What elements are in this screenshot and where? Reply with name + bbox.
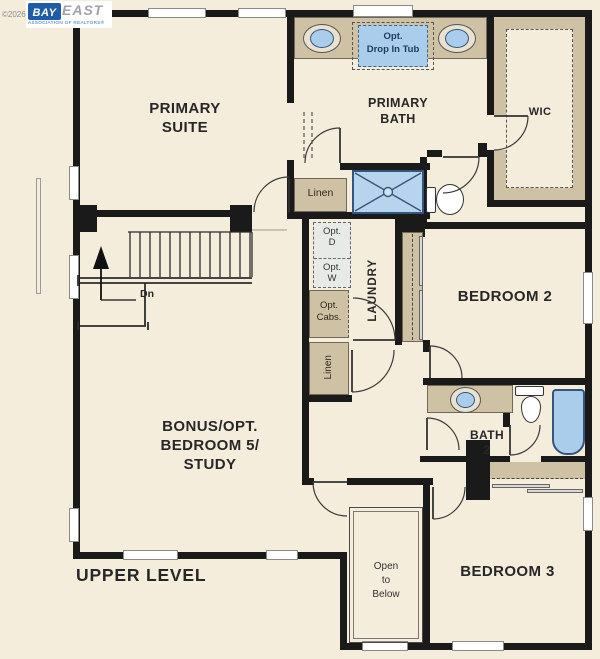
optional-dryer: Opt. D [314, 223, 350, 259]
wall-segment [302, 212, 309, 402]
opt-w-line1: Opt. [314, 262, 350, 273]
sliding-door [419, 236, 423, 286]
toilet-tank [515, 386, 544, 396]
linen-upper-label: Linen [294, 187, 347, 200]
wall-segment [423, 483, 430, 643]
opt-d-line2: D [314, 237, 350, 248]
sink-basin [456, 392, 475, 408]
wall-segment [487, 10, 494, 115]
primary-suite-line2: SUITE [95, 119, 275, 138]
sliding-door [419, 290, 423, 340]
wall-segment [395, 219, 402, 345]
opt-d-line1: Opt. [314, 226, 350, 237]
shower [352, 170, 424, 214]
room-label-bedroom2: BEDROOM 2 [430, 288, 580, 307]
opt-tub-label-line1: Opt. [359, 31, 427, 44]
optional-washer-dryer: Opt. D Opt. W [313, 222, 351, 288]
open-below-line3: Below [352, 588, 420, 602]
wic-shelf [494, 17, 506, 115]
logo: ©2026 BAY EAST ASSOCIATION OF REALTORS® [0, 0, 180, 32]
wall-segment [423, 340, 430, 352]
bath2-line2: 2 [457, 443, 517, 458]
logo-east-text: EAST [62, 2, 103, 18]
stairs-down-label: Dn [140, 288, 170, 301]
wall-segment [287, 10, 294, 103]
linen-lower-label: Linen [323, 327, 336, 407]
wall-segment [487, 200, 592, 207]
window [452, 641, 504, 651]
primary-bath-line1: PRIMARY [330, 96, 466, 112]
window [123, 550, 178, 560]
room-label-bedroom3: BEDROOM 3 [430, 563, 585, 582]
floor-plan: Opt. Drop In Tub Linen Opt. D Opt. W Opt… [0, 0, 600, 659]
window [69, 508, 79, 542]
stair-treads [128, 232, 252, 277]
stair-rails [78, 275, 252, 330]
copyright-year: ©2026 [2, 10, 26, 19]
room-label-wic: WIC [505, 106, 575, 120]
room-label-primary-suite: PRIMARY SUITE [95, 100, 275, 138]
wall-segment [585, 10, 592, 650]
sink-basin [310, 29, 334, 48]
bath2-line1: BATH [457, 428, 517, 443]
level-label: UPPER LEVEL [76, 565, 276, 587]
wall-segment [73, 210, 252, 217]
wall-segment [287, 160, 294, 219]
wall-segment [340, 163, 430, 170]
wic-shelf [494, 17, 585, 29]
window [583, 272, 593, 324]
room-label-primary-bath: PRIMARY BATH [330, 96, 466, 127]
roofline [36, 178, 41, 294]
wall-segment [230, 205, 252, 232]
open-below-line1: Open [352, 560, 420, 574]
window [238, 8, 286, 18]
bathtub [552, 389, 585, 455]
toilet-bowl [521, 396, 541, 423]
toilet-tank [426, 187, 436, 213]
logo-bay-text: BAY [33, 7, 57, 19]
opt-cabs-line2: Cabs. [310, 312, 348, 324]
opt-w-line2: W [314, 273, 350, 284]
sliding-door [492, 484, 550, 488]
wall-segment [427, 150, 442, 157]
toilet-bowl [436, 184, 464, 215]
bonus-line2: BEDROOM 5/ [110, 437, 310, 456]
wall-segment [302, 478, 314, 485]
wall-segment [73, 205, 97, 232]
room-label-bonus: BONUS/OPT. BEDROOM 5/ STUDY [110, 418, 310, 474]
window [69, 255, 79, 299]
logo-bay-box: BAY [28, 3, 61, 20]
stairs-up-arrow [93, 246, 136, 300]
open-below-line2: to [352, 574, 420, 588]
opt-cabs-line1: Opt. [310, 300, 348, 312]
cased-opening [304, 112, 312, 160]
closet-rod [492, 478, 583, 480]
bonus-line1: BONUS/OPT. [110, 418, 310, 437]
wall-segment [487, 150, 494, 207]
optional-washer: Opt. W [314, 259, 350, 285]
wall-segment [423, 378, 585, 385]
closet-rod [412, 234, 414, 340]
wall-segment [347, 478, 433, 485]
window [69, 166, 79, 200]
window [353, 5, 413, 17]
wall-segment [478, 143, 487, 157]
optional-drop-in-tub: Opt. Drop In Tub [358, 25, 428, 67]
window [583, 497, 593, 531]
primary-suite-line1: PRIMARY [95, 100, 275, 119]
logo-tagline: ASSOCIATION OF REALTORS® [28, 21, 104, 26]
room-label-laundry: LAUNDRY [366, 245, 380, 335]
bedroom3-closet [490, 462, 585, 479]
wall-segment [340, 552, 347, 650]
wall-segment [395, 222, 592, 229]
opt-tub-label-line2: Drop In Tub [359, 44, 427, 57]
primary-bath-line2: BATH [330, 112, 466, 128]
sliding-door [527, 489, 583, 493]
window [266, 550, 298, 560]
sink-basin [445, 29, 469, 48]
bonus-line3: STUDY [110, 456, 310, 475]
open-to-below-label: Open to Below [352, 560, 420, 602]
room-label-bath2: BATH 2 [457, 428, 517, 458]
wic-shelf [494, 188, 585, 200]
wall-segment [73, 552, 347, 559]
